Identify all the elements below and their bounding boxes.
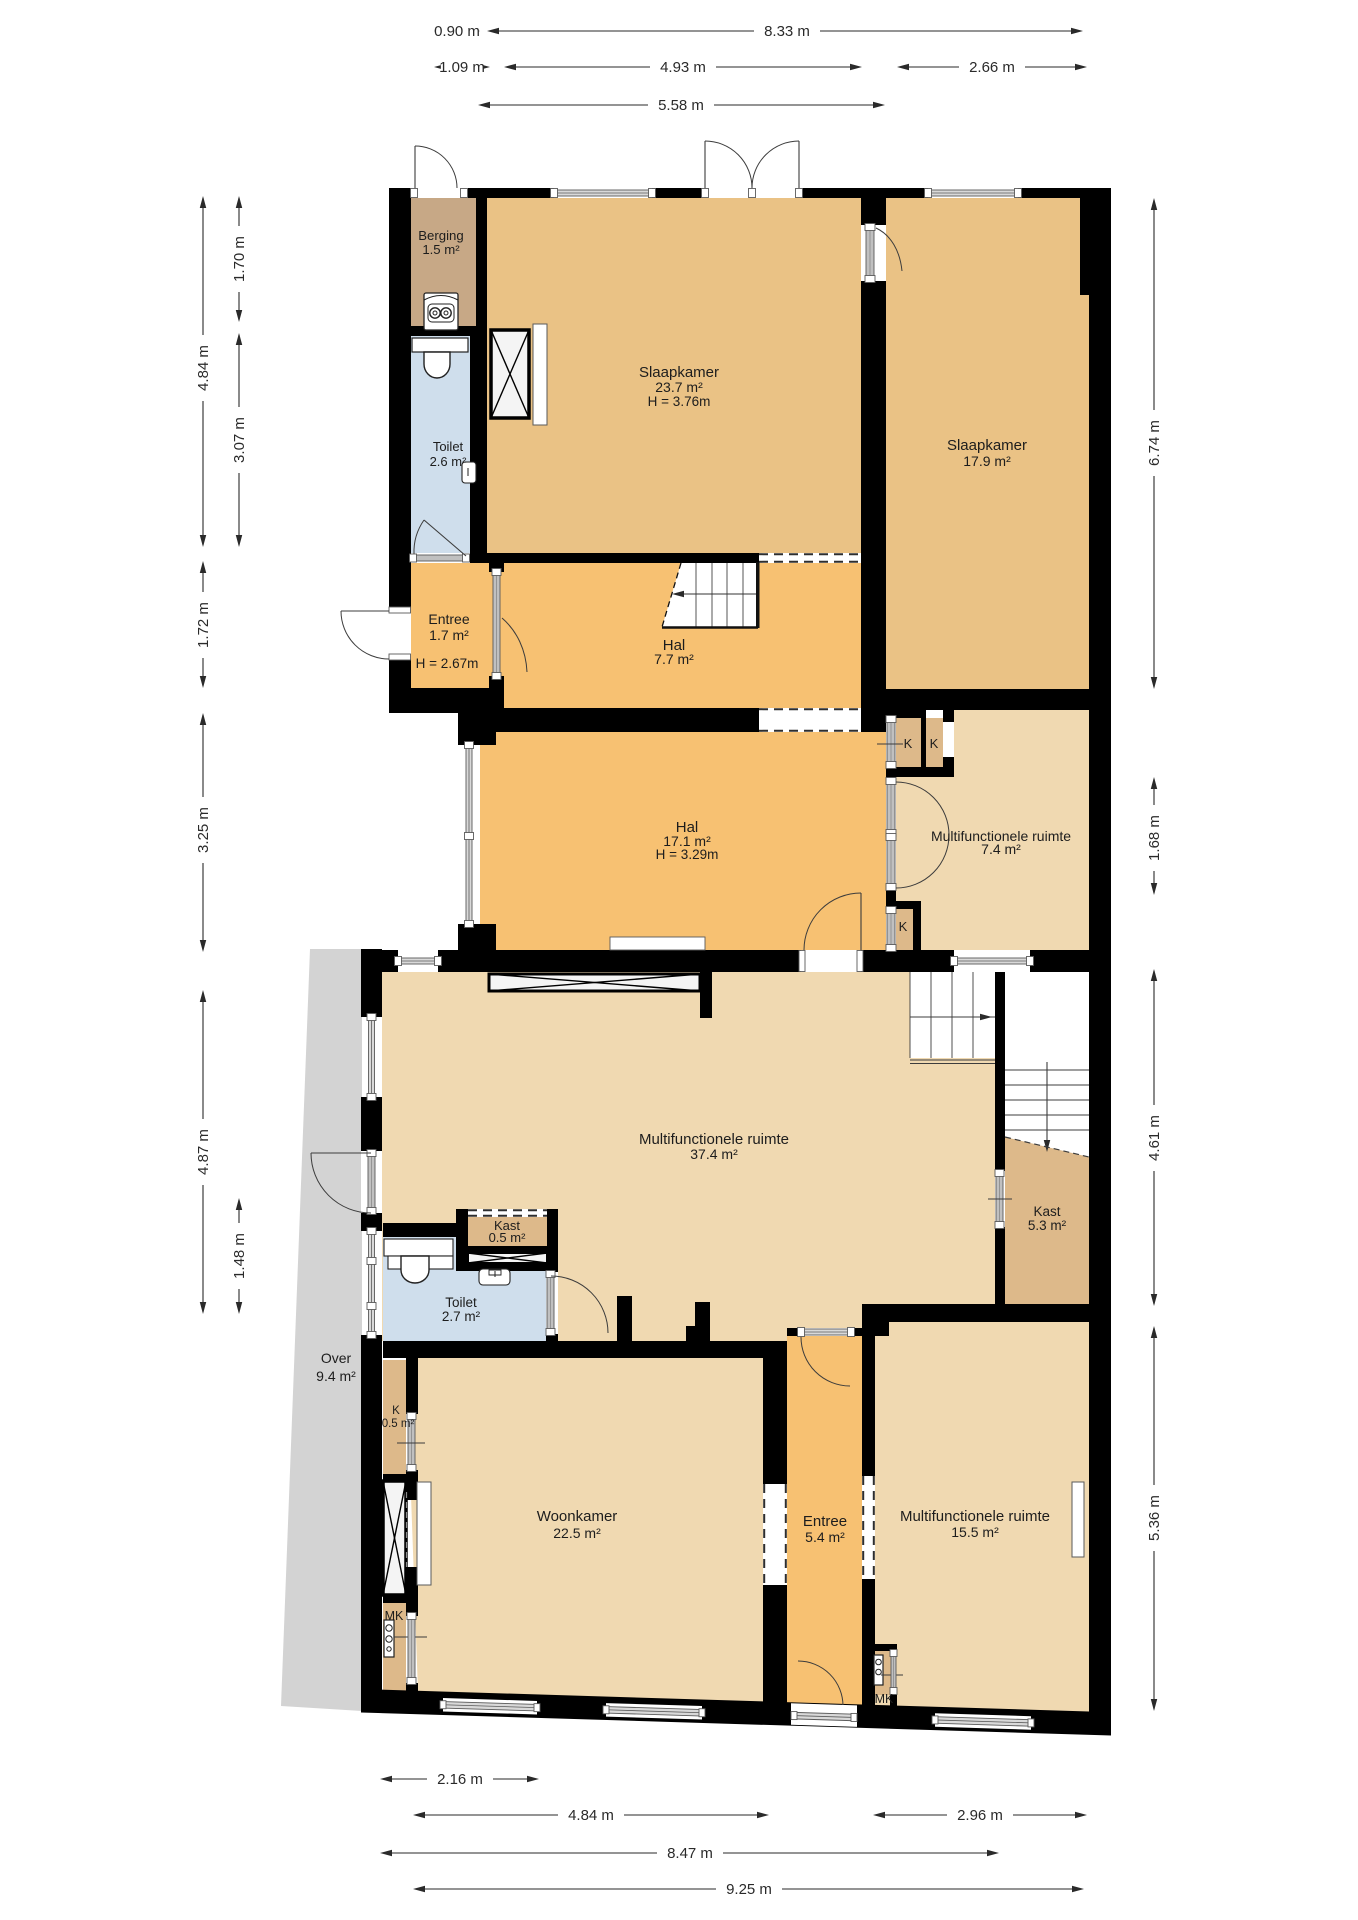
svg-text:5.4 m²: 5.4 m² — [805, 1529, 845, 1545]
svg-text:K: K — [930, 736, 939, 751]
svg-text:MK: MK — [875, 1692, 894, 1706]
svg-text:H = 2.67m: H = 2.67m — [416, 656, 479, 671]
svg-text:Slaapkamer: Slaapkamer — [947, 437, 1027, 454]
svg-text:2.96 m: 2.96 m — [957, 1807, 1003, 1824]
svg-text:0.5 m²: 0.5 m² — [382, 1418, 415, 1430]
svg-text:MK: MK — [385, 1609, 404, 1623]
svg-text:7.4 m²: 7.4 m² — [981, 841, 1021, 857]
svg-text:4.84 m: 4.84 m — [568, 1807, 614, 1824]
svg-text:1.5 m²: 1.5 m² — [422, 242, 460, 257]
svg-text:H = 3.29m: H = 3.29m — [656, 847, 719, 862]
svg-text:K: K — [899, 919, 908, 934]
svg-text:4.61 m: 4.61 m — [1146, 1115, 1163, 1161]
svg-text:0.90 m: 0.90 m — [434, 23, 480, 40]
svg-text:1.72 m: 1.72 m — [195, 602, 212, 648]
svg-text:1.68 m: 1.68 m — [1146, 815, 1163, 861]
svg-text:5.58 m: 5.58 m — [658, 97, 704, 114]
svg-text:Toilet: Toilet — [433, 439, 464, 454]
svg-text:17.9 m²: 17.9 m² — [963, 453, 1011, 469]
svg-text:1.09 m: 1.09 m — [439, 59, 485, 76]
svg-text:37.4 m²: 37.4 m² — [690, 1146, 738, 1162]
svg-text:8.33 m: 8.33 m — [764, 23, 810, 40]
svg-text:Entree: Entree — [428, 611, 469, 627]
svg-text:1.70 m: 1.70 m — [231, 236, 248, 282]
svg-text:Toilet: Toilet — [445, 1295, 477, 1310]
svg-text:3.25 m: 3.25 m — [195, 807, 212, 853]
svg-text:Entree: Entree — [803, 1513, 847, 1530]
svg-text:1.48 m: 1.48 m — [231, 1233, 248, 1279]
svg-text:9.4 m²: 9.4 m² — [316, 1368, 356, 1384]
svg-text:Berging: Berging — [418, 228, 463, 243]
svg-text:4.84 m: 4.84 m — [195, 345, 212, 391]
svg-text:Kast: Kast — [1033, 1204, 1060, 1219]
svg-text:2.16 m: 2.16 m — [437, 1771, 483, 1788]
svg-text:2.66 m: 2.66 m — [969, 59, 1015, 76]
svg-text:Woonkamer: Woonkamer — [537, 1508, 618, 1525]
svg-text:8.47 m: 8.47 m — [667, 1845, 713, 1862]
svg-text:5.3 m²: 5.3 m² — [1028, 1218, 1067, 1233]
svg-text:22.5 m²: 22.5 m² — [553, 1525, 601, 1541]
svg-text:23.7 m²: 23.7 m² — [655, 379, 703, 395]
svg-text:6.74 m: 6.74 m — [1146, 420, 1163, 466]
svg-text:0.5 m²: 0.5 m² — [489, 1230, 527, 1245]
svg-text:H = 3.76m: H = 3.76m — [648, 394, 711, 409]
svg-text:4.87 m: 4.87 m — [195, 1129, 212, 1175]
svg-text:2.7 m²: 2.7 m² — [442, 1309, 481, 1324]
svg-text:5.36 m: 5.36 m — [1146, 1495, 1163, 1541]
svg-text:Multifunctionele ruimte: Multifunctionele ruimte — [900, 1508, 1050, 1525]
svg-text:2.6 m²: 2.6 m² — [430, 454, 468, 469]
svg-text:15.5 m²: 15.5 m² — [951, 1524, 999, 1540]
svg-text:3.07 m: 3.07 m — [231, 417, 248, 463]
svg-text:1.7 m²: 1.7 m² — [429, 627, 469, 643]
svg-text:K: K — [904, 736, 913, 751]
svg-text:K: K — [392, 1405, 400, 1417]
svg-text:7.7 m²: 7.7 m² — [654, 651, 694, 667]
svg-text:4.93 m: 4.93 m — [660, 59, 706, 76]
svg-text:Over: Over — [321, 1350, 352, 1366]
svg-text:9.25 m: 9.25 m — [726, 1881, 772, 1898]
